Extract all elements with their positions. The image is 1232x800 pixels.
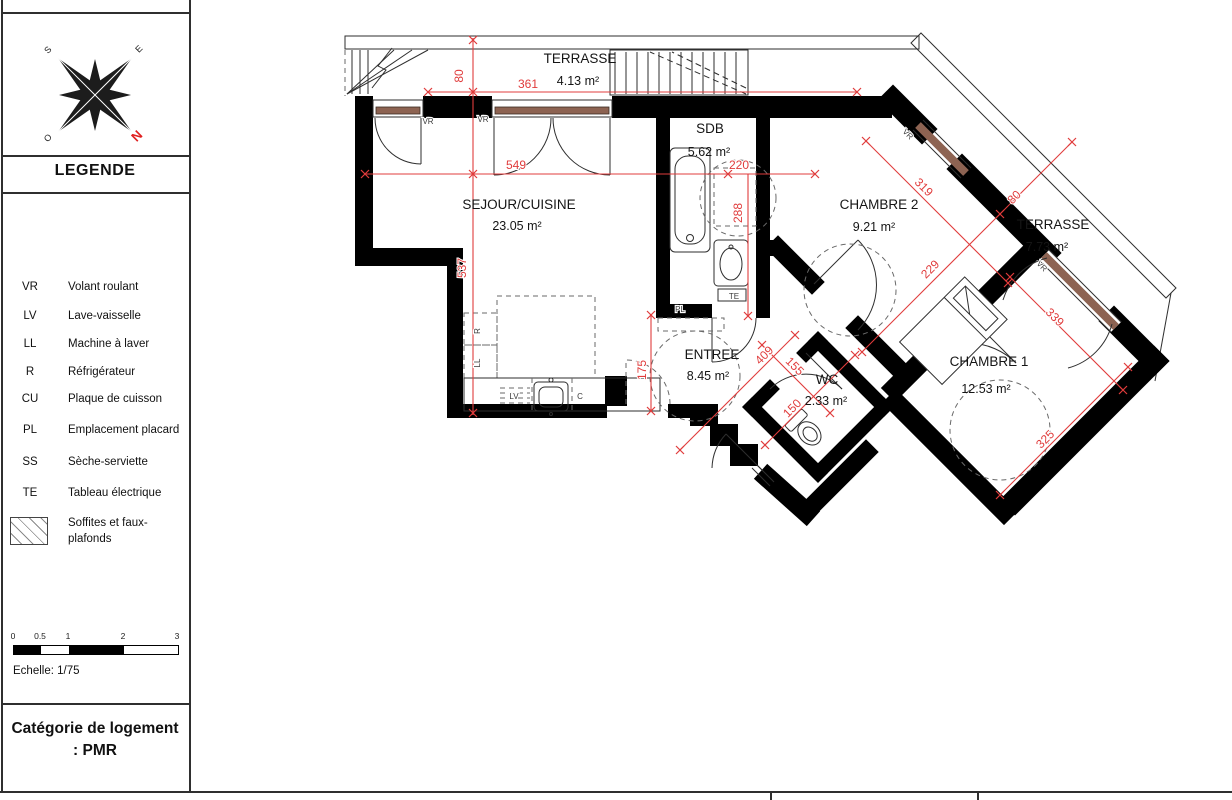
area-sejour: 23.05 m² [492,219,541,233]
walls [355,96,1154,512]
compass-east-label: E [133,43,144,54]
label-chambre2: CHAMBRE 2 [840,197,919,212]
dim-wc-depth: 150 [780,396,804,420]
scale-tick-0: 0 [11,631,16,641]
title-block-top-edge [0,791,1232,793]
housing-category-line2: : PMR [0,740,190,762]
dim-c2-depth: 229 [918,257,942,281]
door-chambre2 [814,240,876,330]
dim-sdb-width: 220 [729,158,749,172]
legend-abbr: CU [10,393,50,405]
legend-label: Volant roulant [68,281,138,293]
legend-abbr: LL [10,338,50,350]
placard-entree [658,318,724,331]
stair-middle [610,50,748,95]
tag-cuisson: C [577,392,583,401]
legend-label: plafonds [68,533,111,545]
compass-rose: S E O N [0,12,190,155]
tag-refrigerateur: R [473,328,482,334]
legend-label: Réfrigérateur [68,366,135,378]
stair-left [347,48,428,94]
scale-tick-3: 3 [175,631,180,641]
area-entree: 8.45 m² [687,369,729,383]
legend-abbr: LV [10,310,50,322]
tag-lave-linge: LL [473,358,482,367]
area-wc: 2.33 m² [805,394,847,408]
title-block-divider [770,792,772,800]
chambre2-turning-circle [804,244,896,336]
sidebar: S E O N LEGENDE VR Volant roulant LV Lav… [0,0,190,793]
scale-label: Echelle: 1/75 [13,665,80,677]
sidebar-divider [1,192,190,194]
window-chambre2 [913,120,971,178]
legend-label: Plaque de cuisson [68,393,162,405]
label-terrasse-right: TERRASSE [1017,217,1090,232]
label-entree: ENTREE [685,347,740,362]
dim-sejour-height: 537 [455,258,469,278]
scale-tick-05: 0.5 [34,631,46,641]
sidebar-divider [1,703,190,705]
area-terrasse-top: 4.13 m² [557,74,599,88]
legend-label: Emplacement placard [68,424,179,436]
kitchen [464,296,660,416]
dim-sdb-height: 288 [731,203,745,223]
dim-terrace-top-width: 361 [518,77,538,91]
area-chambre2: 9.21 m² [853,220,895,234]
area-chambre1: 12.53 m² [961,382,1010,396]
legend-label: Lave-vaisselle [68,310,141,322]
housing-category-line1: Catégorie de logement [0,718,190,740]
terrace-railing-top [345,36,919,49]
legend-label: Sèche-serviette [68,456,148,468]
legend-label: Tableau électrique [68,487,161,499]
bathtub [670,148,710,252]
soffites-hatch-swatch [10,517,48,545]
housing-category: Catégorie de logement : PMR [0,718,190,763]
floor-plan-sheet: 80 361 549 220 288 537 175 319 229 80 40… [0,0,1232,800]
scale-bar [13,645,179,655]
dim-terrace-top-depth: 80 [452,69,466,83]
area-terrasse-right: 7.73 m² [1026,240,1068,254]
dim-sejour-width: 549 [506,158,526,172]
legend-title: LEGENDE [0,162,190,180]
legend-abbr: PL [10,424,50,436]
scale-tick-2: 2 [121,631,126,641]
label-sejour: SEJOUR/CUISINE [462,197,575,212]
dim-c2-window-wall: 319 [912,175,936,199]
tag-vr-b: VR [477,115,488,124]
dim-entree-length: 409 [752,343,776,367]
tag-vr-a: VR [422,117,433,126]
scale-tick-1: 1 [66,631,71,641]
window-sejour-left [373,100,423,164]
tag-lave-vaisselle: LV [509,392,519,401]
compass-north-label: N [128,127,145,144]
area-sdb: 5.62 m² [688,145,730,159]
title-block-divider [977,792,979,800]
legend-abbr: R [10,366,50,378]
dim-kitchen-opening: 175 [635,360,649,380]
legend-label: Machine à laver [68,338,149,350]
label-sdb: SDB [696,121,724,136]
legend-abbr: TE [10,487,50,499]
compass-west-label: O [42,132,54,144]
sdb-sink [714,240,748,286]
label-wc: WC [816,372,839,387]
sidebar-divider [1,155,190,157]
tag-te: TE [729,292,739,301]
legend-abbr: SS [10,456,50,468]
tag-pl: PL [675,305,685,314]
compass-south-label: S [42,44,53,55]
label-chambre1: CHAMBRE 1 [950,354,1029,369]
legend-abbr: VR [10,281,50,293]
legend-label: Soffites et faux- [68,517,148,529]
dim-c1-window-wall: 339 [1043,305,1067,329]
label-terrasse-top: TERRASSE [544,51,617,66]
